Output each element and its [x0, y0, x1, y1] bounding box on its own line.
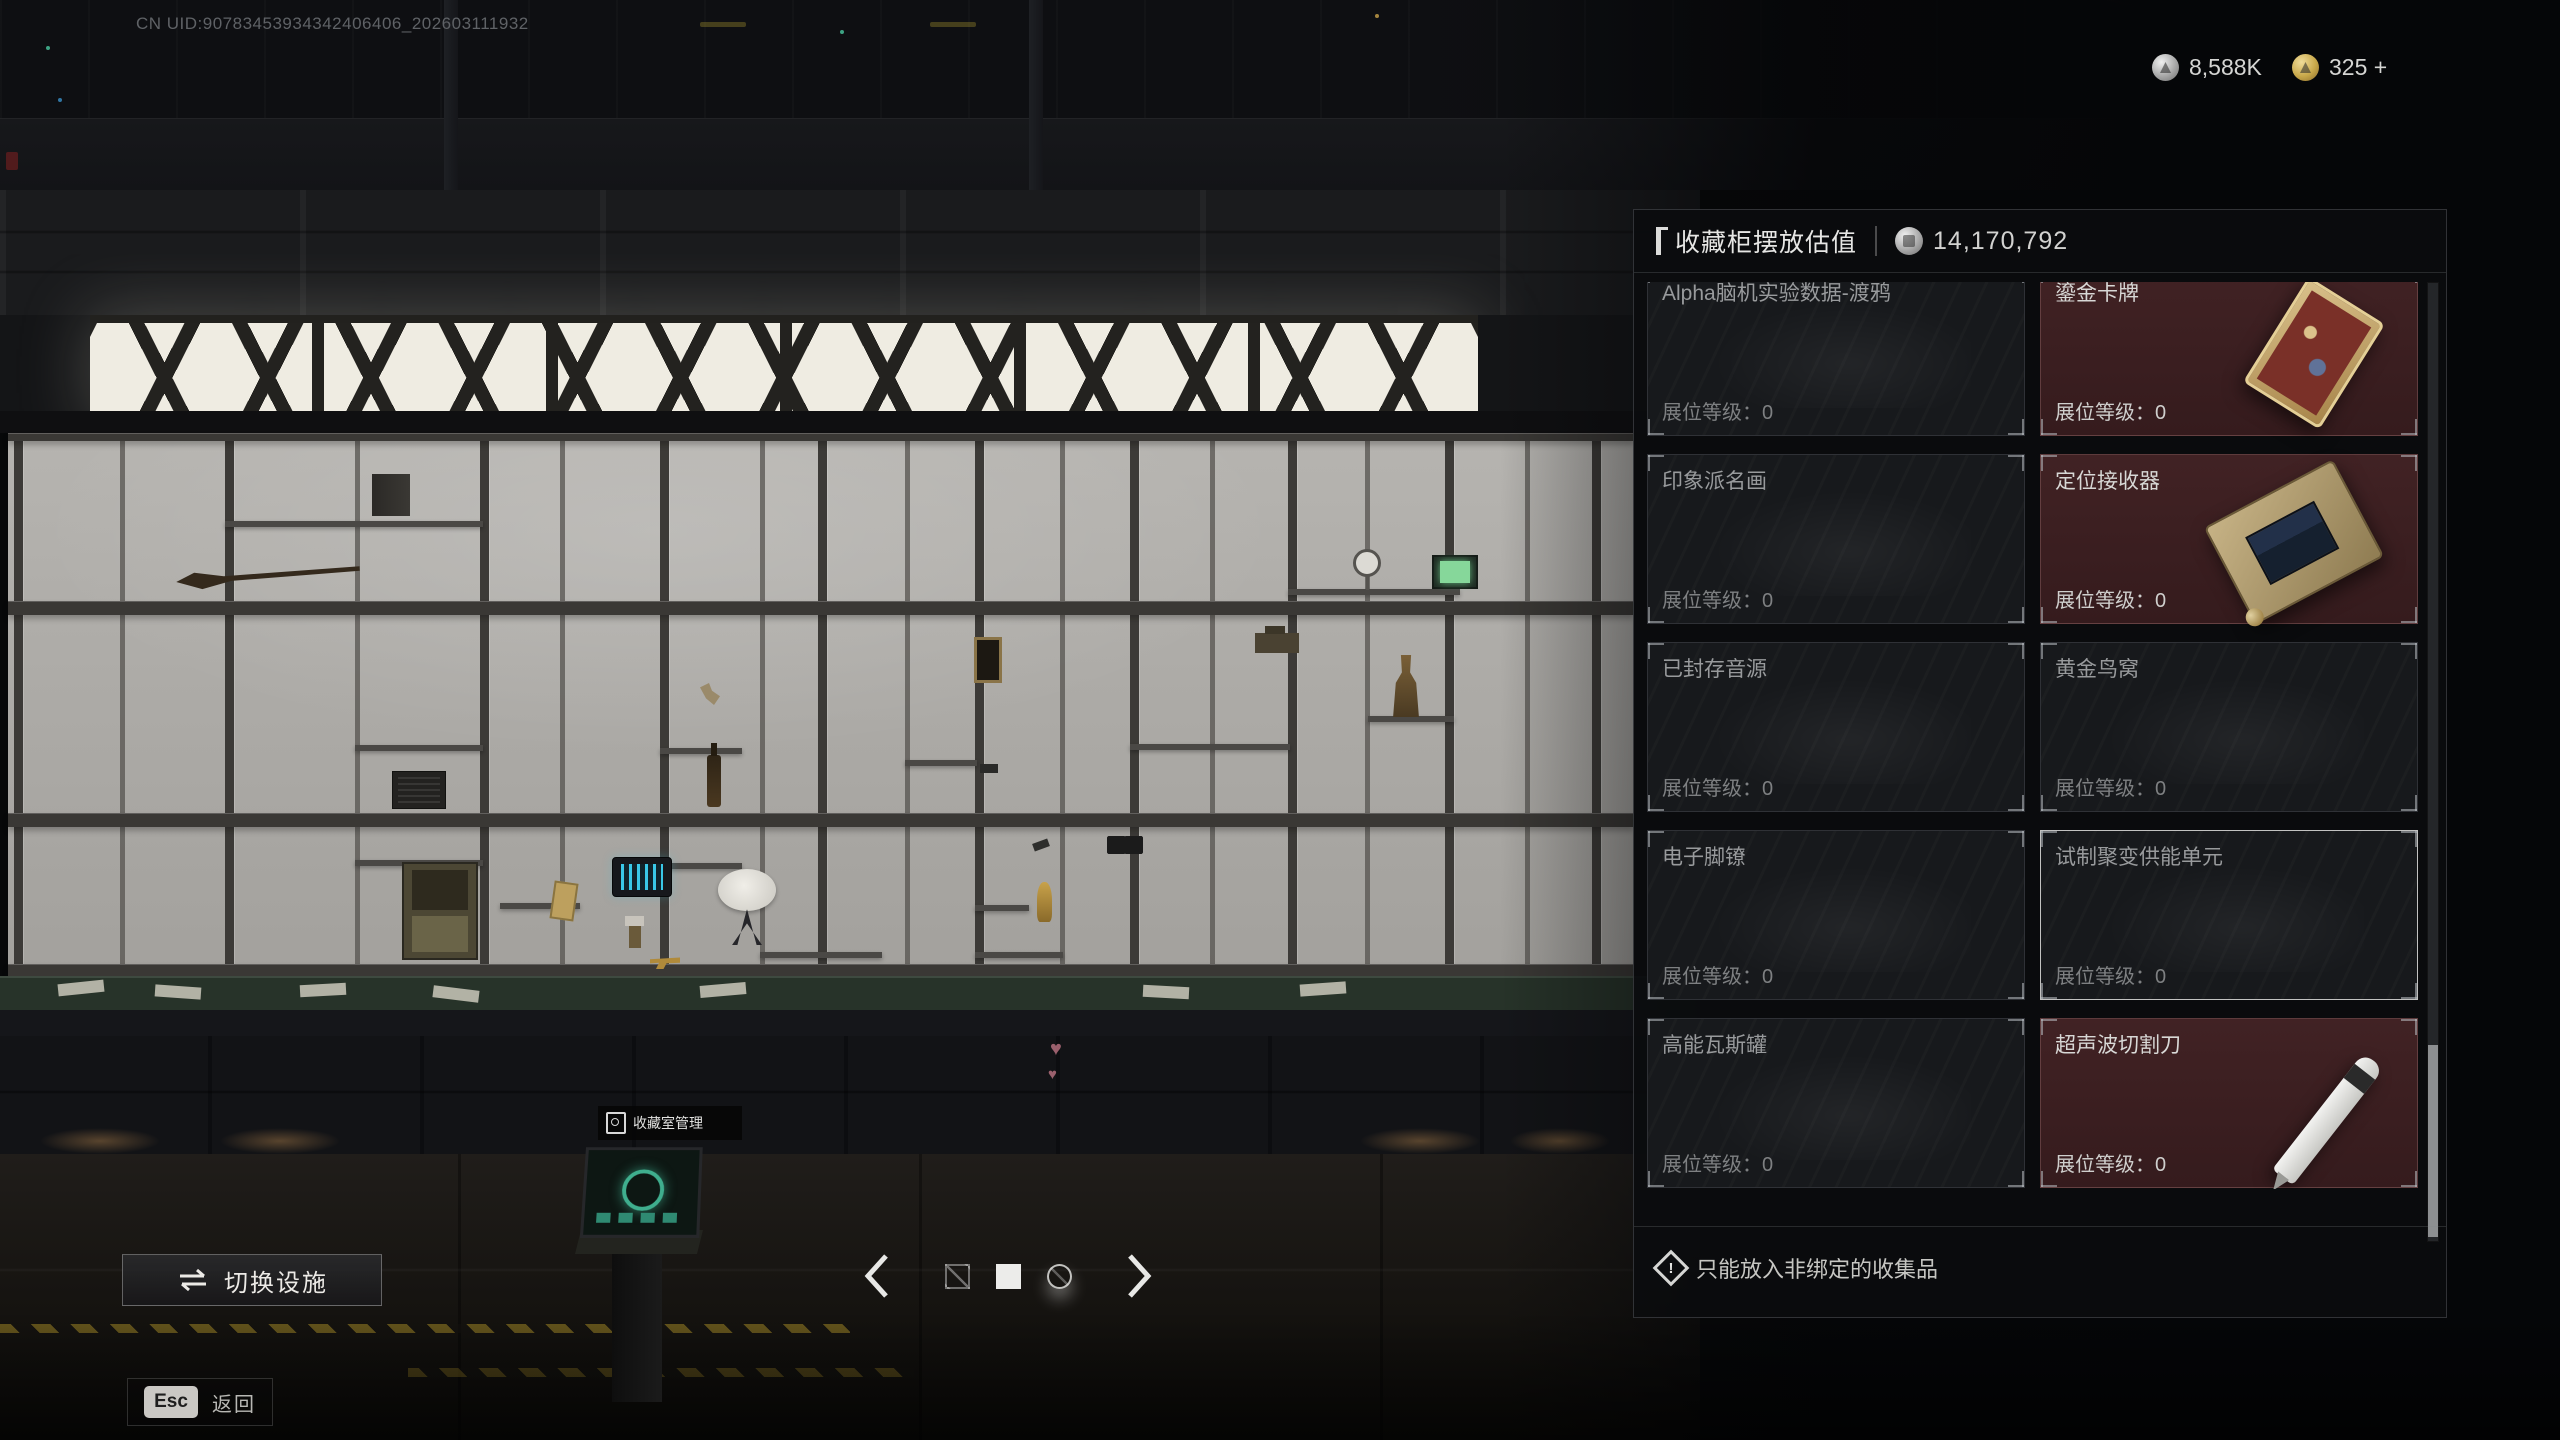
gold-coin-icon: [2292, 54, 2319, 81]
collection-slot[interactable]: Alpha脑机实验数据-渡鸦 展位等级：0: [1647, 282, 2025, 436]
display-item-bust[interactable]: [1389, 655, 1423, 717]
total-valuation: 14,170,792: [1933, 227, 2068, 256]
display-item-figurine[interactable]: [1037, 882, 1052, 922]
collection-slot[interactable]: 印象派名画 展位等级：0: [1647, 454, 2025, 624]
esc-return-button[interactable]: Esc 返回: [127, 1378, 273, 1426]
display-item-binoculars[interactable]: [1107, 836, 1143, 854]
display-item-green-screen-device[interactable]: [1432, 555, 1478, 589]
server-light: [58, 98, 62, 102]
terminal-screen[interactable]: [580, 1147, 703, 1238]
scene-shadow: [0, 1310, 2560, 1440]
slot-level: 展位等级：0: [2055, 396, 2166, 425]
collection-slot[interactable]: 定位接收器 展位等级：0: [2040, 454, 2418, 624]
facility-pagination: [860, 1248, 1156, 1304]
collection-grid: Alpha脑机实验数据-渡鸦 展位等级：0 鎏金卡牌 展位等级：0 印象派名画 …: [1647, 282, 2418, 1189]
server-label: [700, 22, 746, 27]
sub-shelf: [660, 748, 742, 754]
shelf-post: [1130, 433, 1139, 976]
sub-shelf: [1288, 589, 1460, 595]
page-dot-3[interactable]: [1047, 1264, 1072, 1289]
shelf-rail: [8, 433, 1634, 441]
collection-slot[interactable]: 鎏金卡牌 展位等级：0: [2040, 282, 2418, 436]
shelf-post: [480, 433, 489, 976]
shelf-post: [14, 433, 23, 976]
currency-silver[interactable]: 8,588K: [2152, 54, 2262, 81]
server-light: [840, 30, 844, 34]
shelf-post: [1365, 433, 1370, 976]
page-indicators: [945, 1264, 1072, 1289]
header-accent-mark: [1656, 227, 1661, 255]
footer-note-text: 只能放入非绑定的收集品: [1696, 1252, 1938, 1284]
slot-level: 展位等级：0: [1662, 960, 1773, 989]
terminal-tooltip: 收藏室管理: [598, 1106, 742, 1140]
display-item-scanner[interactable]: [612, 857, 672, 897]
ghost-item: [1701, 861, 1972, 972]
collection-panel: 收藏柜摆放估值 14,170,792 Alpha脑机实验数据-渡鸦 展位等级：0…: [1633, 209, 2447, 1318]
slot-level: 展位等级：0: [1662, 1148, 1773, 1177]
heart-decal: ♥: [1048, 1066, 1057, 1083]
heart-decal: ♥: [1050, 1038, 1062, 1061]
panel-header: 收藏柜摆放估值 14,170,792: [1634, 210, 2446, 272]
skylight-frame: [0, 315, 90, 411]
item-name: 高能瓦斯罐: [1662, 1029, 1767, 1059]
ceiling-column: [1029, 0, 1043, 190]
shelf-post: [1060, 433, 1065, 976]
game-screen: ♥ ♥ 收藏室管理 CN UID:90783453934342406406_20…: [0, 0, 2560, 1440]
sub-shelf: [355, 745, 483, 751]
counter-top: [0, 976, 1700, 1012]
shelf-post: [975, 433, 984, 976]
display-item-clock[interactable]: [1353, 549, 1381, 577]
under-cabinet-light: [1360, 1128, 1480, 1154]
ghost-item: [2094, 861, 2365, 972]
item-name: 电子脚镣: [1662, 841, 1746, 871]
display-item-bottle[interactable]: [707, 755, 721, 807]
sub-shelf: [975, 952, 1063, 958]
page-dot-2-active[interactable]: [996, 1264, 1021, 1289]
display-wall: [8, 433, 1634, 976]
display-item-satellite-dish[interactable]: [718, 869, 778, 949]
silver-coin-icon: [1895, 227, 1923, 255]
slot-level: 展位等级：0: [1662, 772, 1773, 801]
header-separator: [1634, 272, 2446, 273]
ghost-item: [1701, 1049, 1972, 1160]
item-name: 印象派名画: [1662, 465, 1767, 495]
gilded-card-art: [2243, 282, 2385, 429]
shelf-post: [225, 433, 234, 976]
paper-sheet: [1143, 985, 1190, 999]
counter-front: [0, 1010, 1700, 1036]
ultrasonic-cutter-art: [2272, 1053, 2384, 1186]
esc-keycap: Esc: [144, 1386, 198, 1418]
sub-shelf: [1130, 744, 1290, 750]
item-name: 超声波切割刀: [2055, 1029, 2181, 1059]
display-item-tank-model[interactable]: [1255, 633, 1299, 653]
terminal-pedestal: [612, 1252, 662, 1402]
display-item-horn[interactable]: [700, 683, 720, 705]
sub-shelf: [225, 521, 483, 527]
terminal-label: 收藏室管理: [633, 1113, 703, 1133]
paper-sheet: [300, 983, 347, 997]
sub-shelf: [975, 905, 1029, 911]
wall-marking: [6, 152, 18, 170]
ghost-item: [1701, 673, 1972, 784]
next-arrow[interactable]: [1122, 1252, 1156, 1300]
shelf-post: [818, 433, 827, 976]
display-item-hatchet[interactable]: [629, 918, 641, 948]
shelf-post: [905, 433, 910, 976]
return-label: 返回: [212, 1388, 256, 1417]
shelf-post: [1210, 433, 1215, 976]
shelf-post: [1288, 433, 1297, 976]
item-name: 黄金鸟窝: [2055, 653, 2139, 683]
silver-coin-icon: [2152, 54, 2179, 81]
footer-separator: [1634, 1226, 2446, 1227]
wall-header: [0, 411, 1700, 433]
scrollbar-thumb[interactable]: [2428, 1045, 2438, 1237]
roof-truss: [0, 190, 1700, 315]
switch-facility-label: 切换设施: [224, 1263, 328, 1298]
shelf-post: [1445, 433, 1454, 976]
currency-silver-value: 8,588K: [2189, 54, 2262, 81]
shelf-rail: [8, 813, 1634, 827]
panel-scrollbar[interactable]: [2427, 282, 2439, 1242]
server-label: [930, 22, 976, 27]
item-name: Alpha脑机实验数据-渡鸦: [1662, 282, 1891, 307]
page-dot-1[interactable]: [945, 1264, 970, 1289]
collection-slot[interactable]: 已封存音源 展位等级：0: [1647, 642, 2025, 812]
shelf-post: [120, 433, 125, 976]
collection-slot[interactable]: 超声波切割刀 展位等级：0: [2040, 1018, 2418, 1188]
collection-slot[interactable]: 黄金鸟窝 展位等级：0: [2040, 642, 2418, 812]
slot-level: 展位等级：0: [1662, 396, 1773, 425]
slot-level: 展位等级：0: [1662, 584, 1773, 613]
collection-slot-highlighted[interactable]: 试制聚变供能单元 展位等级：0: [2040, 830, 2418, 1000]
collection-slot[interactable]: 高能瓦斯罐 展位等级：0: [1647, 1018, 2025, 1188]
ghost-item: [1701, 297, 1972, 408]
currency-gold-value: 325 +: [2329, 54, 2387, 81]
item-name: 试制聚变供能单元: [2055, 841, 2223, 871]
shelf-rail: [8, 601, 1634, 615]
slot-level: 展位等级：0: [2055, 960, 2166, 989]
sub-shelf: [760, 952, 882, 958]
ghost-item: [2094, 673, 2365, 784]
item-name: 定位接收器: [2055, 465, 2160, 495]
display-item-plaque[interactable]: [372, 474, 410, 516]
item-name: 鎏金卡牌: [2055, 282, 2139, 307]
shelf-rail: [8, 964, 1634, 976]
display-item-knife[interactable]: [1032, 839, 1050, 852]
slot-level: 展位等级：0: [2055, 772, 2166, 801]
display-item-rifle[interactable]: [175, 556, 360, 594]
prev-arrow[interactable]: [860, 1252, 894, 1300]
panel-title: 收藏柜摆放估值: [1675, 223, 1857, 259]
slot-level: 展位等级：0: [2055, 584, 2166, 613]
switch-facility-button[interactable]: 切换设施: [122, 1254, 382, 1306]
sub-shelf: [905, 760, 977, 766]
panel-footer-note: 只能放入非绑定的收集品: [1658, 1240, 1938, 1296]
display-item-radio[interactable]: [392, 771, 446, 809]
item-name: 已封存音源: [1662, 653, 1767, 683]
locator-receiver-art: [2204, 459, 2385, 625]
swap-arrows-icon: [176, 1268, 210, 1292]
server-light: [1375, 14, 1379, 18]
server-light: [46, 46, 50, 50]
display-item-briefcase[interactable]: [402, 862, 478, 960]
header-divider: [1875, 226, 1877, 256]
currency-gold[interactable]: 325 +: [2292, 54, 2387, 81]
under-cabinet-light: [220, 1128, 340, 1154]
slot-level: 展位等级：0: [2055, 1148, 2166, 1177]
ghost-item: [1701, 485, 1972, 596]
display-item-framed-picture[interactable]: [974, 637, 1002, 683]
collection-slot[interactable]: 电子脚镣 展位等级：0: [1647, 830, 2025, 1000]
display-item-gold-card[interactable]: [549, 881, 578, 922]
cabinet-icon: [606, 1112, 626, 1134]
under-cabinet-light: [40, 1128, 160, 1154]
player-uid: CN UID:90783453934342406406_202603111932: [136, 14, 529, 34]
shelf-post: [355, 433, 360, 976]
display-item-pistol[interactable]: [980, 764, 998, 773]
alert-diamond-icon: [1653, 1250, 1690, 1287]
